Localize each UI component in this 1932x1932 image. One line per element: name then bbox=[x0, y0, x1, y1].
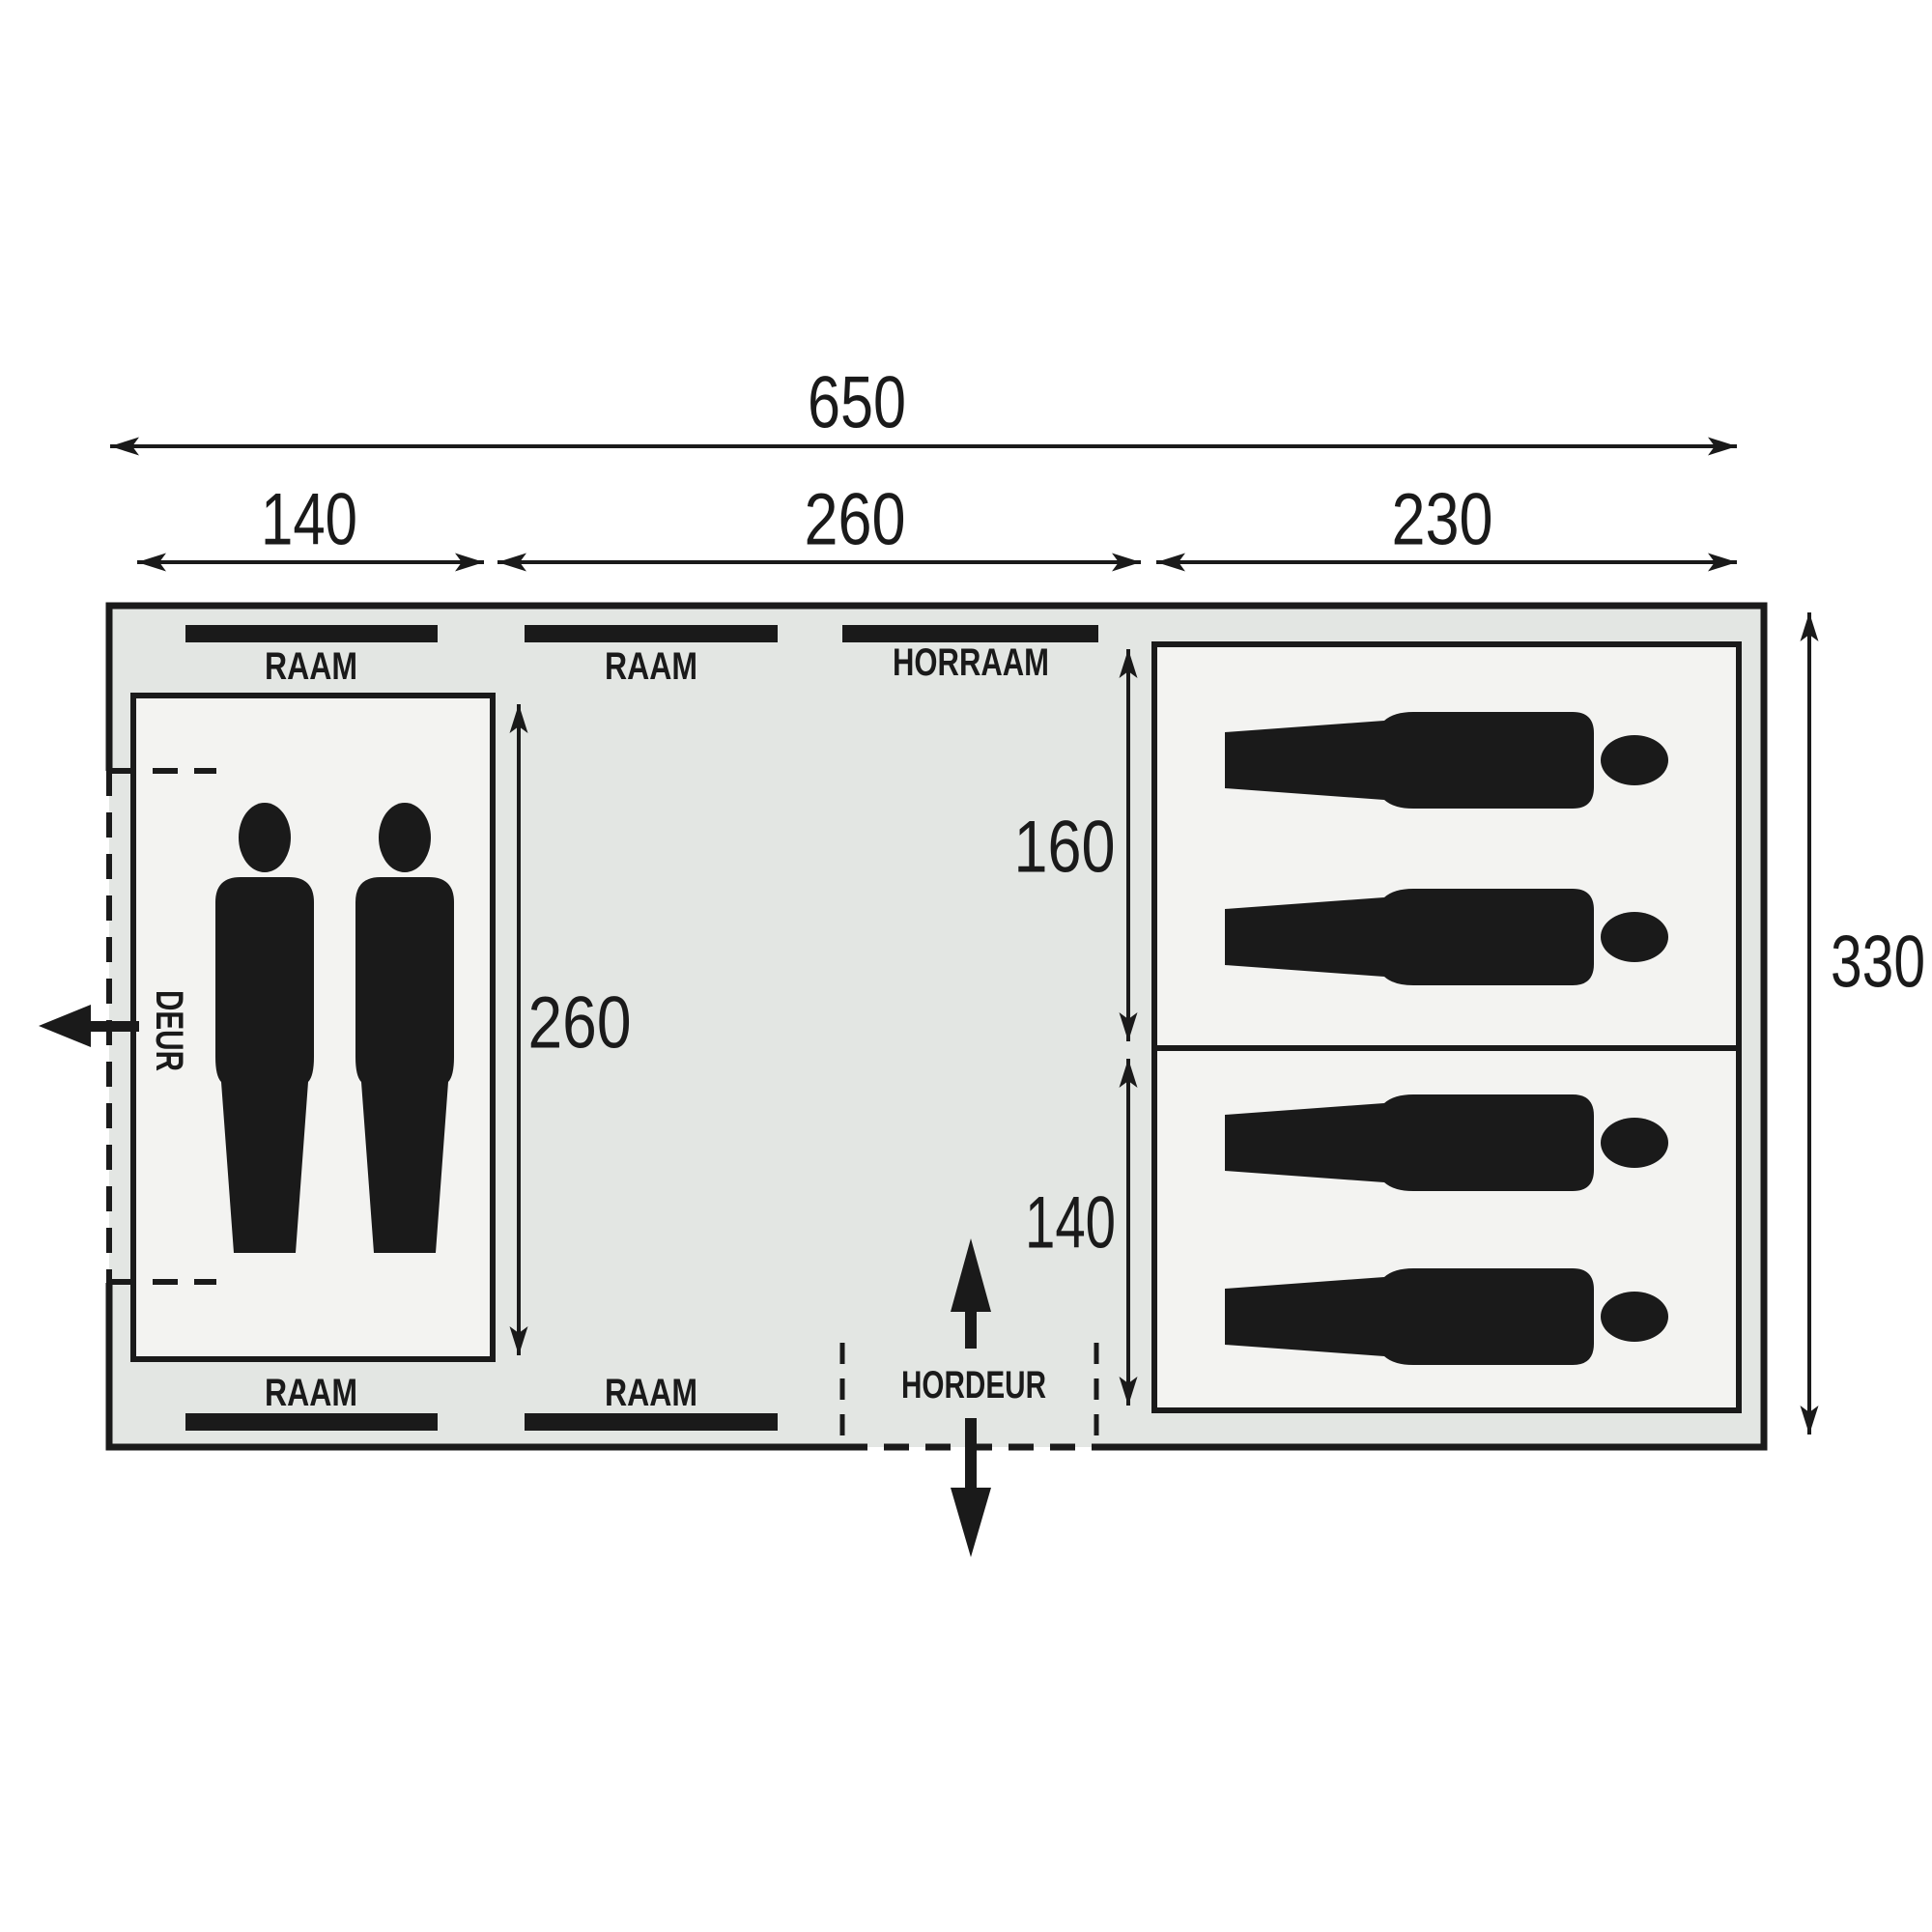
dimension-label-sleep-top: 160 bbox=[1014, 807, 1116, 889]
mesh-window-bar-top-right bbox=[842, 625, 1098, 642]
mesh-window-label-top-right: HORRAAM bbox=[893, 641, 1049, 684]
floorplan-canvas: RAAM RAAM HORRAAM RAAM RAAM HORDEUR DEUR… bbox=[0, 0, 1932, 1932]
tent-floorplan-diagram: RAAM RAAM HORRAAM RAAM RAAM HORDEUR DEUR… bbox=[0, 0, 1932, 1932]
window-label-bottom-left: RAAM bbox=[265, 1372, 357, 1414]
dimension-label-living-width: 260 bbox=[805, 479, 906, 561]
dimension-label-sleep-bottom: 140 bbox=[1025, 1182, 1116, 1264]
screen-door-label: HORDEUR bbox=[901, 1364, 1046, 1406]
window-label-top-middle: RAAM bbox=[605, 645, 697, 688]
window-bar-top-middle bbox=[525, 625, 778, 642]
window-bar-bottom-left bbox=[185, 1413, 438, 1431]
window-bar-bottom-middle bbox=[525, 1413, 778, 1431]
dimension-label-total-depth: 330 bbox=[1831, 922, 1925, 1004]
dimension-label-sleeping-width: 230 bbox=[1392, 479, 1493, 561]
window-bar-top-left bbox=[185, 625, 438, 642]
window-label-bottom-middle: RAAM bbox=[605, 1372, 697, 1414]
dimension-label-total-width: 650 bbox=[808, 362, 906, 444]
door-label: DEUR bbox=[148, 990, 190, 1071]
dimension-label-cabin-width: 140 bbox=[261, 479, 357, 561]
dimension-label-living-depth: 260 bbox=[528, 982, 632, 1065]
window-label-top-left: RAAM bbox=[265, 645, 357, 688]
